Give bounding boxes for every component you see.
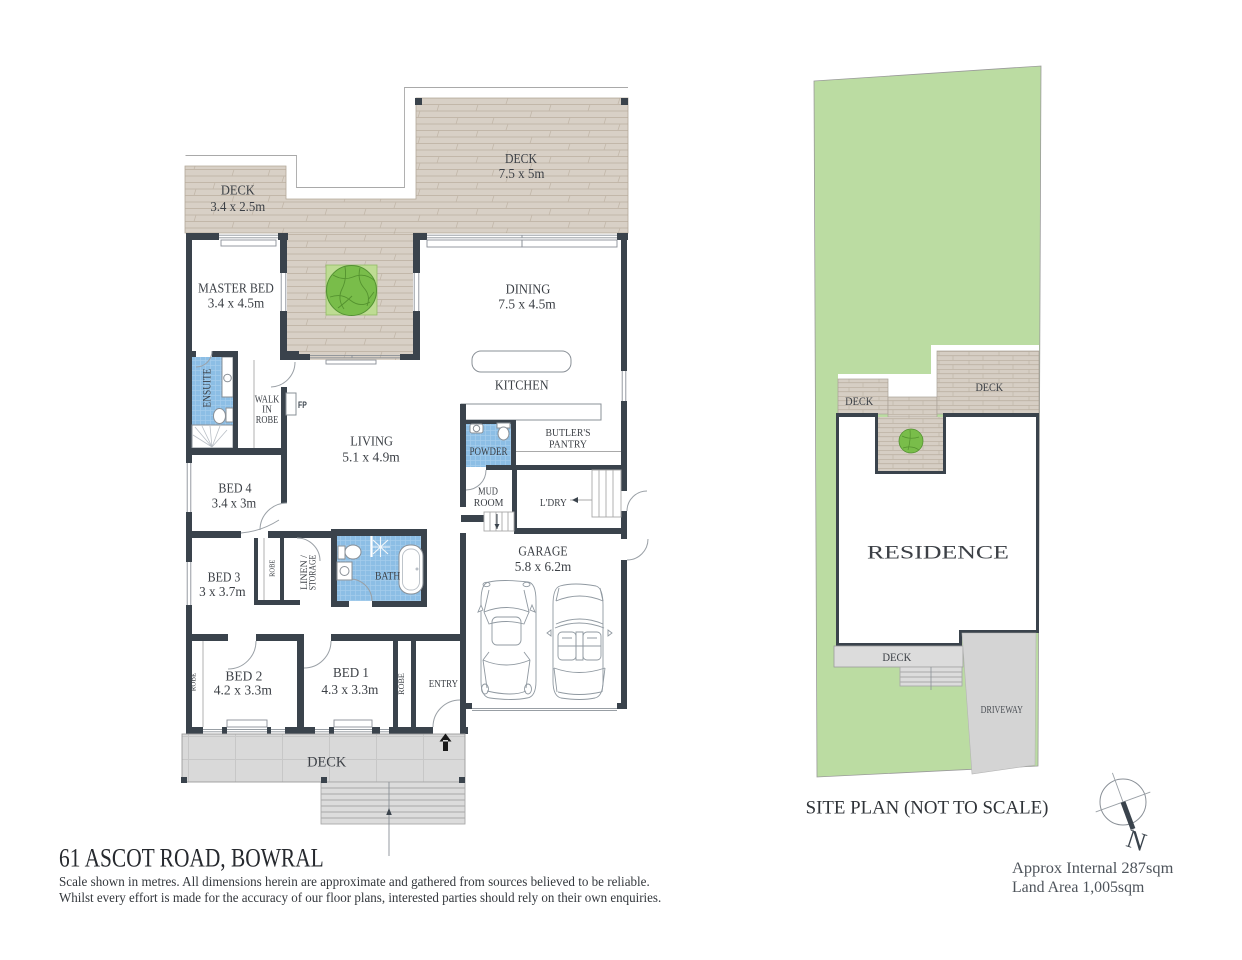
svg-text:Whilst every effort is made fo: Whilst every effort is made for the accu… [59,890,661,906]
svg-text:PANTRY: PANTRY [549,439,587,451]
svg-text:BUTLER'S: BUTLER'S [546,428,591,440]
svg-text:DECK: DECK [845,395,873,408]
svg-text:ROOM: ROOM [474,498,504,510]
svg-text:BATH: BATH [375,571,401,583]
svg-text:MUD: MUD [478,486,498,498]
svg-text:Land Area 1,005sqm: Land Area 1,005sqm [1012,879,1145,896]
svg-text:RESIDENCE: RESIDENCE [867,542,1009,563]
svg-text:ROBE: ROBE [268,560,277,577]
svg-text:DECK: DECK [882,651,912,664]
svg-text:Approx Internal 287sqm: Approx Internal 287sqm [1012,859,1174,877]
svg-text:ENSUITE: ENSUITE [200,368,213,407]
svg-text:LIVING: LIVING [350,433,393,449]
svg-text:DECK: DECK [505,150,538,166]
svg-text:STORAGE: STORAGE [307,555,318,591]
svg-text:ROBE: ROBE [189,672,197,691]
svg-text:BED 1: BED 1 [333,665,369,680]
svg-text:3 x 3.7m: 3 x 3.7m [199,584,246,599]
svg-text:7.5 x 4.5m: 7.5 x 4.5m [498,296,556,311]
svg-text:4.2 x 3.3m: 4.2 x 3.3m [214,683,273,698]
svg-text:MASTER BED: MASTER BED [198,281,274,296]
svg-text:KITCHEN: KITCHEN [495,378,549,393]
svg-text:IN: IN [262,404,272,416]
svg-text:BED 3: BED 3 [208,570,241,585]
svg-text:ROBE: ROBE [397,673,406,695]
svg-text:7.5 x 5m: 7.5 x 5m [499,166,545,182]
svg-text:5.1 x 4.9m: 5.1 x 4.9m [342,449,400,464]
svg-text:5.8 x 6.2m: 5.8 x 6.2m [515,559,572,574]
svg-text:DECK: DECK [307,754,347,770]
svg-text:BED 4: BED 4 [218,481,252,496]
svg-text:3.4 x 4.5m: 3.4 x 4.5m [208,295,265,310]
svg-text:DRIVEWAY: DRIVEWAY [981,704,1024,715]
svg-text:L'DRY: L'DRY [540,497,567,509]
svg-text:DINING: DINING [506,281,551,297]
svg-text:ENTRY: ENTRY [429,678,458,690]
svg-text:DECK: DECK [221,182,255,198]
svg-text:3.4 x 2.5m: 3.4 x 2.5m [210,198,265,214]
svg-text:Scale shown in metres. All dim: Scale shown in metres. All dimensions he… [59,874,650,889]
svg-text:3.4 x 3m: 3.4 x 3m [212,495,256,510]
svg-text:ROBE: ROBE [256,415,279,426]
svg-text:SITE PLAN (NOT TO SCALE): SITE PLAN (NOT TO SCALE) [806,798,1049,819]
svg-text:FP: FP [298,400,307,410]
svg-text:4.3 x 3.3m: 4.3 x 3.3m [321,682,379,697]
svg-text:DECK: DECK [975,381,1003,394]
svg-text:GARAGE: GARAGE [518,544,568,559]
svg-text:POWDER: POWDER [470,446,509,458]
svg-text:61 ASCOT ROAD, BOWRAL: 61 ASCOT ROAD, BOWRAL [59,845,324,873]
svg-text:BED 2: BED 2 [225,668,262,683]
